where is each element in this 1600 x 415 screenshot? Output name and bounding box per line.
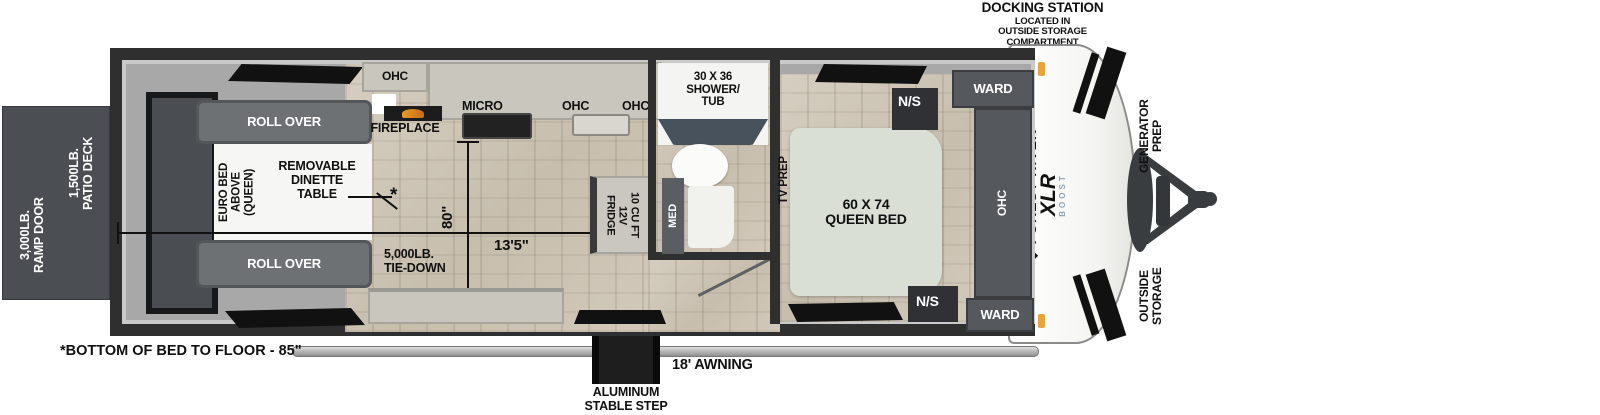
shower-tub: 30 X 36 SHOWER/ TUB: [658, 63, 768, 145]
dim-135-label: 13'5": [494, 238, 529, 255]
kitchen-counter: MICRO OHC OHC: [428, 62, 662, 120]
roll-over-top-label: ROLL OVER: [247, 115, 321, 129]
ramp-door-label: 3,000LB. RAMP DOOR: [19, 175, 47, 295]
nightstand-bottom: N/S: [908, 286, 958, 322]
entry-step: [592, 336, 660, 384]
med-cabinet: MED: [662, 178, 684, 254]
trailer-hitch: [1118, 140, 1218, 260]
dim-80-line: [467, 142, 469, 294]
dinette-marker: *: [390, 186, 397, 207]
bed-height-note: *BOTTOM OF BED TO FLOOR - 85": [60, 343, 302, 359]
ohc-bedroom-cabinet: OHC: [974, 108, 1032, 298]
awning-label: 18' AWNING: [672, 358, 753, 374]
queen-bed-label: 60 X 74 QUEEN BED: [825, 197, 906, 228]
ward-top-label: WARD: [974, 82, 1013, 96]
ramp-door-patio-deck-panel: 1,500LB. PATIO DECK 3,000LB. RAMP DOOR: [2, 106, 110, 300]
fireplace-graphic: [384, 106, 442, 121]
sofa-top: ROLL OVER: [196, 100, 372, 144]
fridge: 10 CU FT 12V FRIDGE: [590, 176, 650, 254]
window: [815, 64, 927, 84]
floorplan-diagram: DOCKING STATION LOCATED IN OUTSIDE STORA…: [0, 0, 1600, 415]
shower-label: 30 X 36 SHOWER/ TUB: [658, 63, 768, 109]
wardrobe-top: WARD: [952, 70, 1034, 108]
clearance-light: [1038, 62, 1045, 76]
tv-prep-label: TV PREP: [778, 140, 791, 220]
ns-top-label: N/S: [898, 94, 921, 109]
ohc-mid-label: OHC: [562, 100, 589, 114]
wardrobe-bottom: WARD: [966, 298, 1034, 332]
brand-model: XLR: [1040, 174, 1059, 216]
clearance-light: [1038, 314, 1045, 328]
med-label: MED: [667, 204, 679, 228]
dim-135-tick: [117, 222, 119, 244]
vanity: [688, 186, 734, 248]
hallway-floor: [648, 255, 780, 332]
window: [225, 308, 365, 328]
ohc-bedroom-label: OHC: [996, 190, 1009, 216]
awning-bar: [292, 346, 1039, 357]
dim-135-line: [118, 232, 598, 234]
ns-bottom-label: N/S: [916, 294, 939, 309]
patio-deck-label: 1,500LB. PATIO DECK: [68, 113, 96, 233]
ward-bottom-label: WARD: [981, 308, 1020, 322]
roll-over-bottom-label: ROLL OVER: [247, 257, 321, 271]
step-label: ALUMINUM STABLE STEP: [552, 386, 700, 414]
sofa-bottom: ROLL OVER: [196, 240, 372, 288]
brand-model-sub: BOOST: [1058, 173, 1067, 216]
tub-rim: [658, 119, 768, 145]
dim-80-label: 80": [440, 192, 457, 242]
ohc-left-label: OHC: [382, 70, 408, 83]
ohc-left-cabinet: OHC: [362, 62, 428, 92]
docking-station-note: DOCKING STATION LOCATED IN OUTSIDE STORA…: [950, 1, 1135, 48]
bath-wall-left: [648, 60, 656, 260]
flame-icon: [402, 109, 424, 118]
queen-bed: 60 X 74 QUEEN BED: [790, 128, 942, 296]
trailer-body: ROLL OVER ROLL OVER EURO BED ABOVE (QUEE…: [110, 48, 1035, 336]
docking-station-heading: DOCKING STATION: [950, 1, 1135, 16]
outside-storage-label: OUTSIDE STORAGE: [1138, 246, 1164, 346]
euro-bed-area: EURO BED ABOVE (QUEEN) REMOVABLE DINETTE…: [214, 144, 372, 240]
tie-down-label: 5,000LB. TIE-DOWN: [384, 248, 456, 276]
cooktop: [462, 113, 532, 139]
fireplace-label: FIREPLACE: [364, 122, 446, 136]
euro-bed-label: EURO BED ABOVE (QUEEN): [218, 146, 256, 238]
entry-door-mat: [574, 310, 666, 324]
micro-label: MICRO: [462, 100, 503, 114]
nightstand-top: N/S: [892, 88, 938, 130]
sink: [572, 114, 630, 136]
window: [788, 302, 903, 322]
fridge-label: 10 CU FT 12V FRIDGE: [604, 192, 640, 238]
window: [228, 64, 363, 84]
generator-prep-label: GENERATOR PREP: [1138, 80, 1164, 192]
dim-80-tick: [457, 141, 479, 143]
ohc-right-label: OHC: [622, 100, 649, 114]
island-counter: [368, 288, 564, 324]
